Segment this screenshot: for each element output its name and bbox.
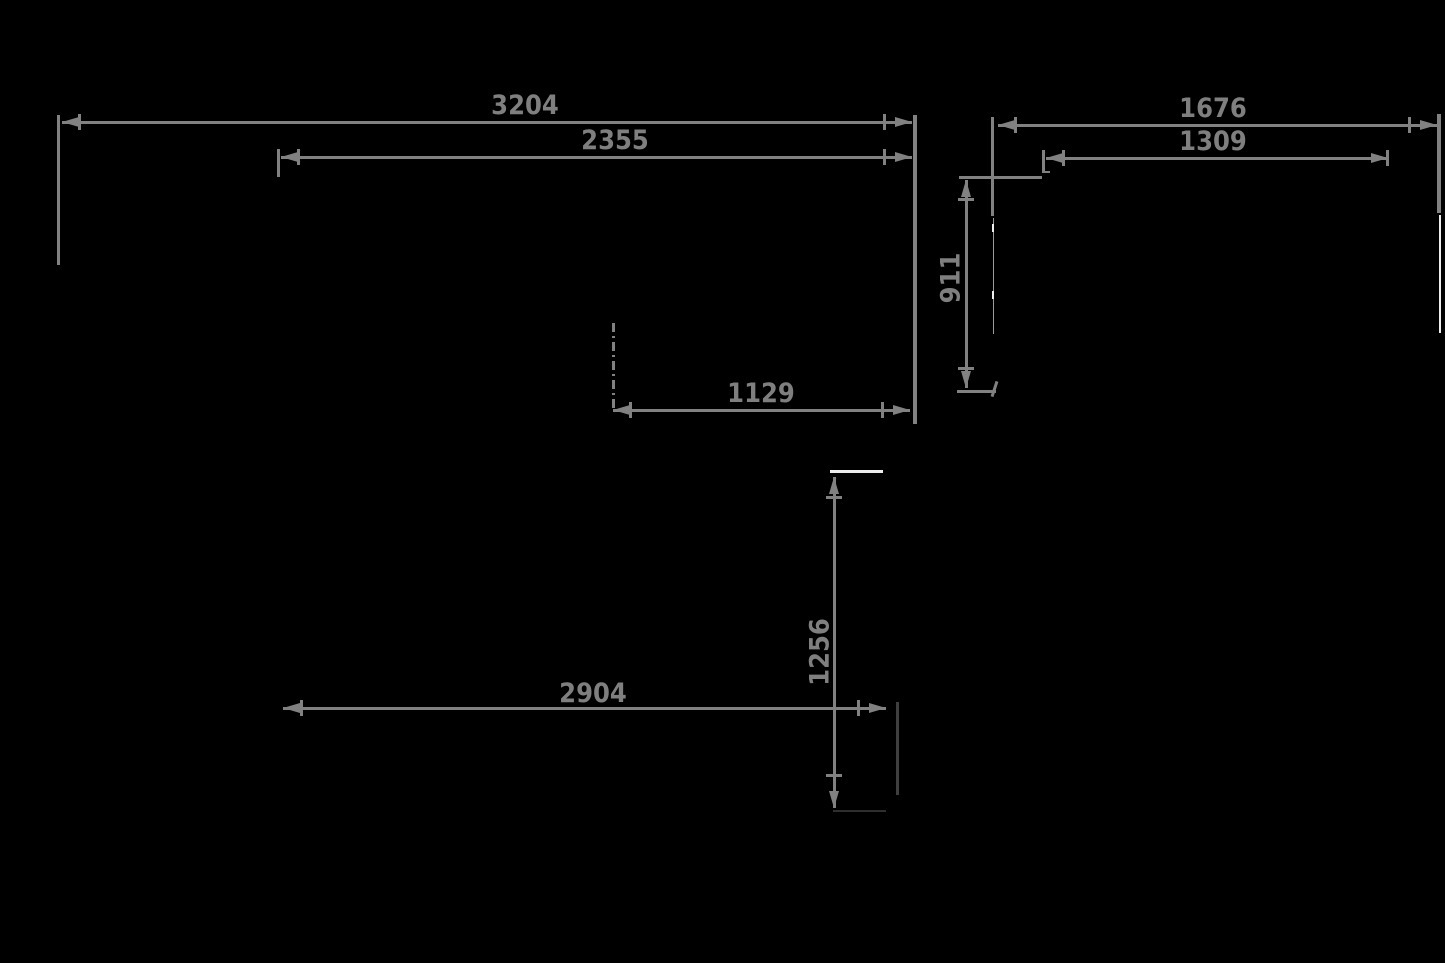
dim-911-extension-top: [959, 176, 1042, 179]
dim-2355-tick-right: [883, 149, 886, 165]
dim-1256-label: 1256: [807, 618, 834, 686]
geometry-dark-edge-right: [896, 702, 899, 795]
dim-1309-tick-left: [1062, 150, 1065, 166]
drawing-canvas: 3204 2355 1129 1676 1309 911: [0, 0, 1445, 963]
dim-1676-label: 1676: [1179, 95, 1247, 122]
dim-1309-line: [1046, 157, 1388, 160]
dim-3204-tick-left: [78, 114, 81, 130]
dim-3204-tick-right: [883, 114, 886, 130]
extension-line-1676-right: [1437, 114, 1441, 213]
dim-911-extension-bottom-tick: [991, 381, 999, 397]
dim-911-label: 911: [938, 253, 965, 304]
dim-1256-arrow-up: [829, 477, 839, 494]
dim-3204-arrow-right: [895, 117, 912, 127]
dim-911-tick-top: [958, 198, 974, 201]
dim-1309-extension-foot: [1042, 171, 1050, 173]
extension-line-1676-left: [991, 117, 994, 216]
dim-911-arrow-down: [961, 371, 971, 388]
dim-911-arrow-up: [961, 180, 971, 197]
dim-2904-label: 2904: [559, 680, 627, 707]
dim-1256-tick-top: [826, 496, 842, 499]
geometry-white-dash-1: [992, 224, 994, 232]
dim-2904-arrow-right: [869, 703, 886, 713]
dim-1256-arrow-down: [829, 791, 839, 808]
dim-2904-arrow-left: [283, 703, 300, 713]
dim-2355-arrow-right: [895, 152, 912, 162]
extension-line-left: [57, 115, 60, 265]
dim-3204-line: [62, 121, 912, 124]
dim-1309-label: 1309: [1179, 128, 1247, 155]
dim-2355-extension-tick: [277, 149, 280, 177]
geometry-edge-right: [913, 115, 917, 424]
dim-2904-tick-right: [857, 700, 860, 716]
dim-2355-line: [281, 156, 912, 159]
dim-2355-label: 2355: [581, 127, 649, 154]
dim-1129-arrow-left: [613, 405, 630, 415]
dim-1676-tick-right: [1408, 117, 1411, 133]
dim-3204-label: 3204: [491, 92, 559, 119]
dim-1676-arrow-right: [1420, 120, 1437, 130]
dim-2355-tick-left: [297, 149, 300, 165]
geometry-white-top-edge: [830, 470, 883, 473]
geometry-white-dash-2: [992, 291, 994, 299]
dim-1129-arrow-right: [893, 405, 910, 415]
dim-1256-tick-bottom: [826, 774, 842, 777]
dim-1309-extension-tick-left: [1042, 150, 1045, 173]
geometry-white-edge-right: [1439, 215, 1441, 333]
dim-1309-extension-tick-right: [1386, 150, 1389, 166]
dim-3204-arrow-left: [62, 117, 79, 127]
dim-911-tick-bottom: [958, 367, 974, 370]
dim-1309-arrow-left: [1046, 153, 1063, 163]
dim-2355-arrow-left: [281, 152, 298, 162]
dim-1129-tick-right: [881, 402, 884, 418]
dim-911-extension-bottom: [957, 390, 996, 393]
dim-1676-arrow-left: [998, 120, 1015, 130]
dim-1129-line: [613, 409, 910, 412]
geometry-dark-bottom-edge: [833, 810, 886, 812]
dim-1676-tick-left: [1014, 117, 1017, 133]
dim-1129-label: 1129: [727, 380, 795, 407]
geometry-thin-line: [993, 218, 994, 334]
dim-2904-tick-left: [300, 700, 303, 716]
centerline-dashdot: [612, 323, 615, 409]
dim-1129-tick-left: [629, 402, 632, 418]
